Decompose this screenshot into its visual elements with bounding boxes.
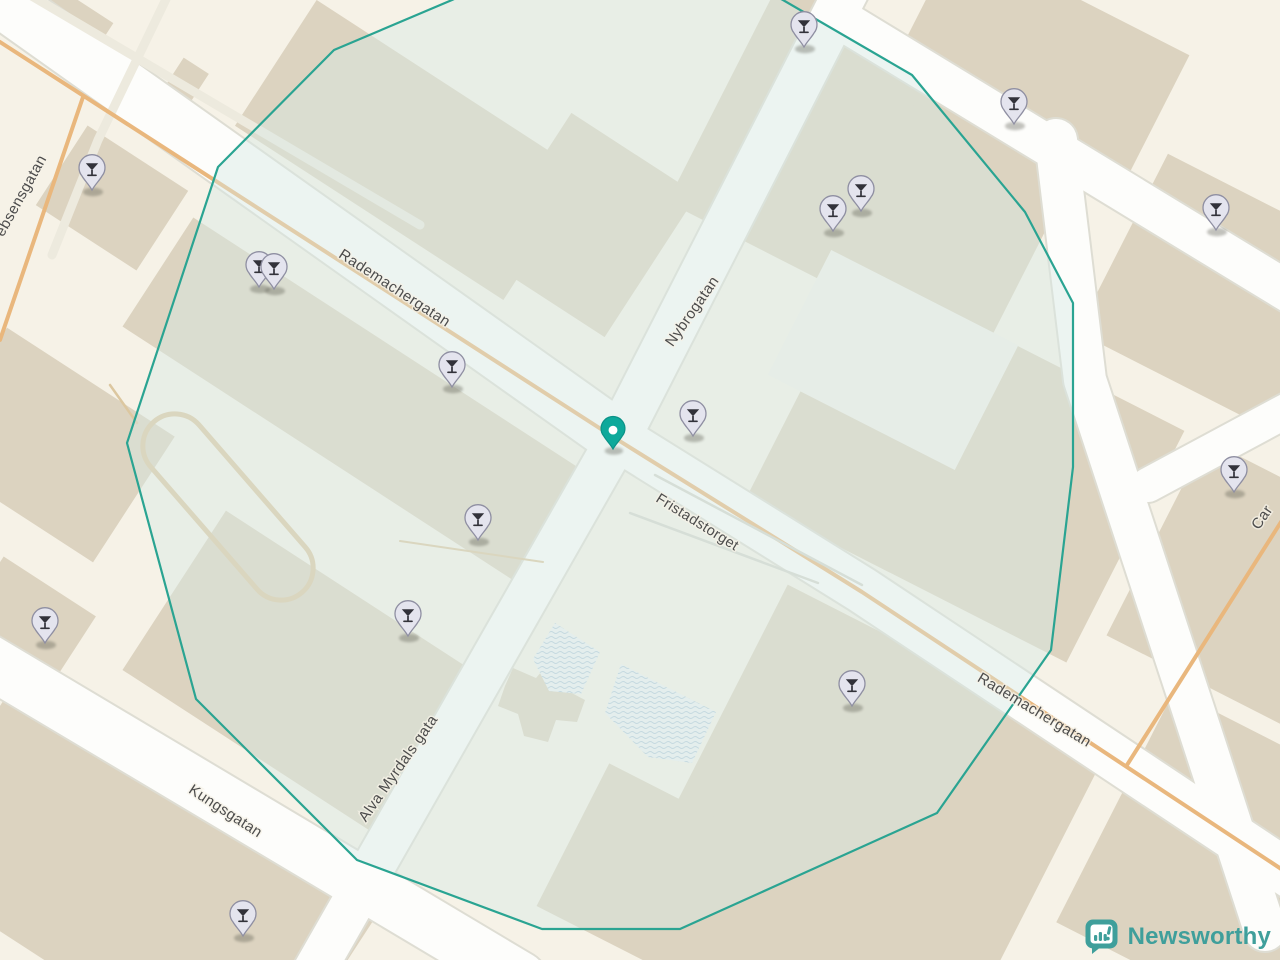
watermark: Newsworthy [1084,918,1271,955]
newsworthy-logo-icon [1084,918,1119,955]
focus-pin-dot [609,426,618,435]
map-view: RademachergatanNybrogatanFristadstorgetR… [0,0,1280,960]
map-canvas[interactable]: RademachergatanNybrogatanFristadstorgetR… [0,0,1280,960]
watermark-brand-name[interactable]: Newsworthy [1128,923,1271,951]
